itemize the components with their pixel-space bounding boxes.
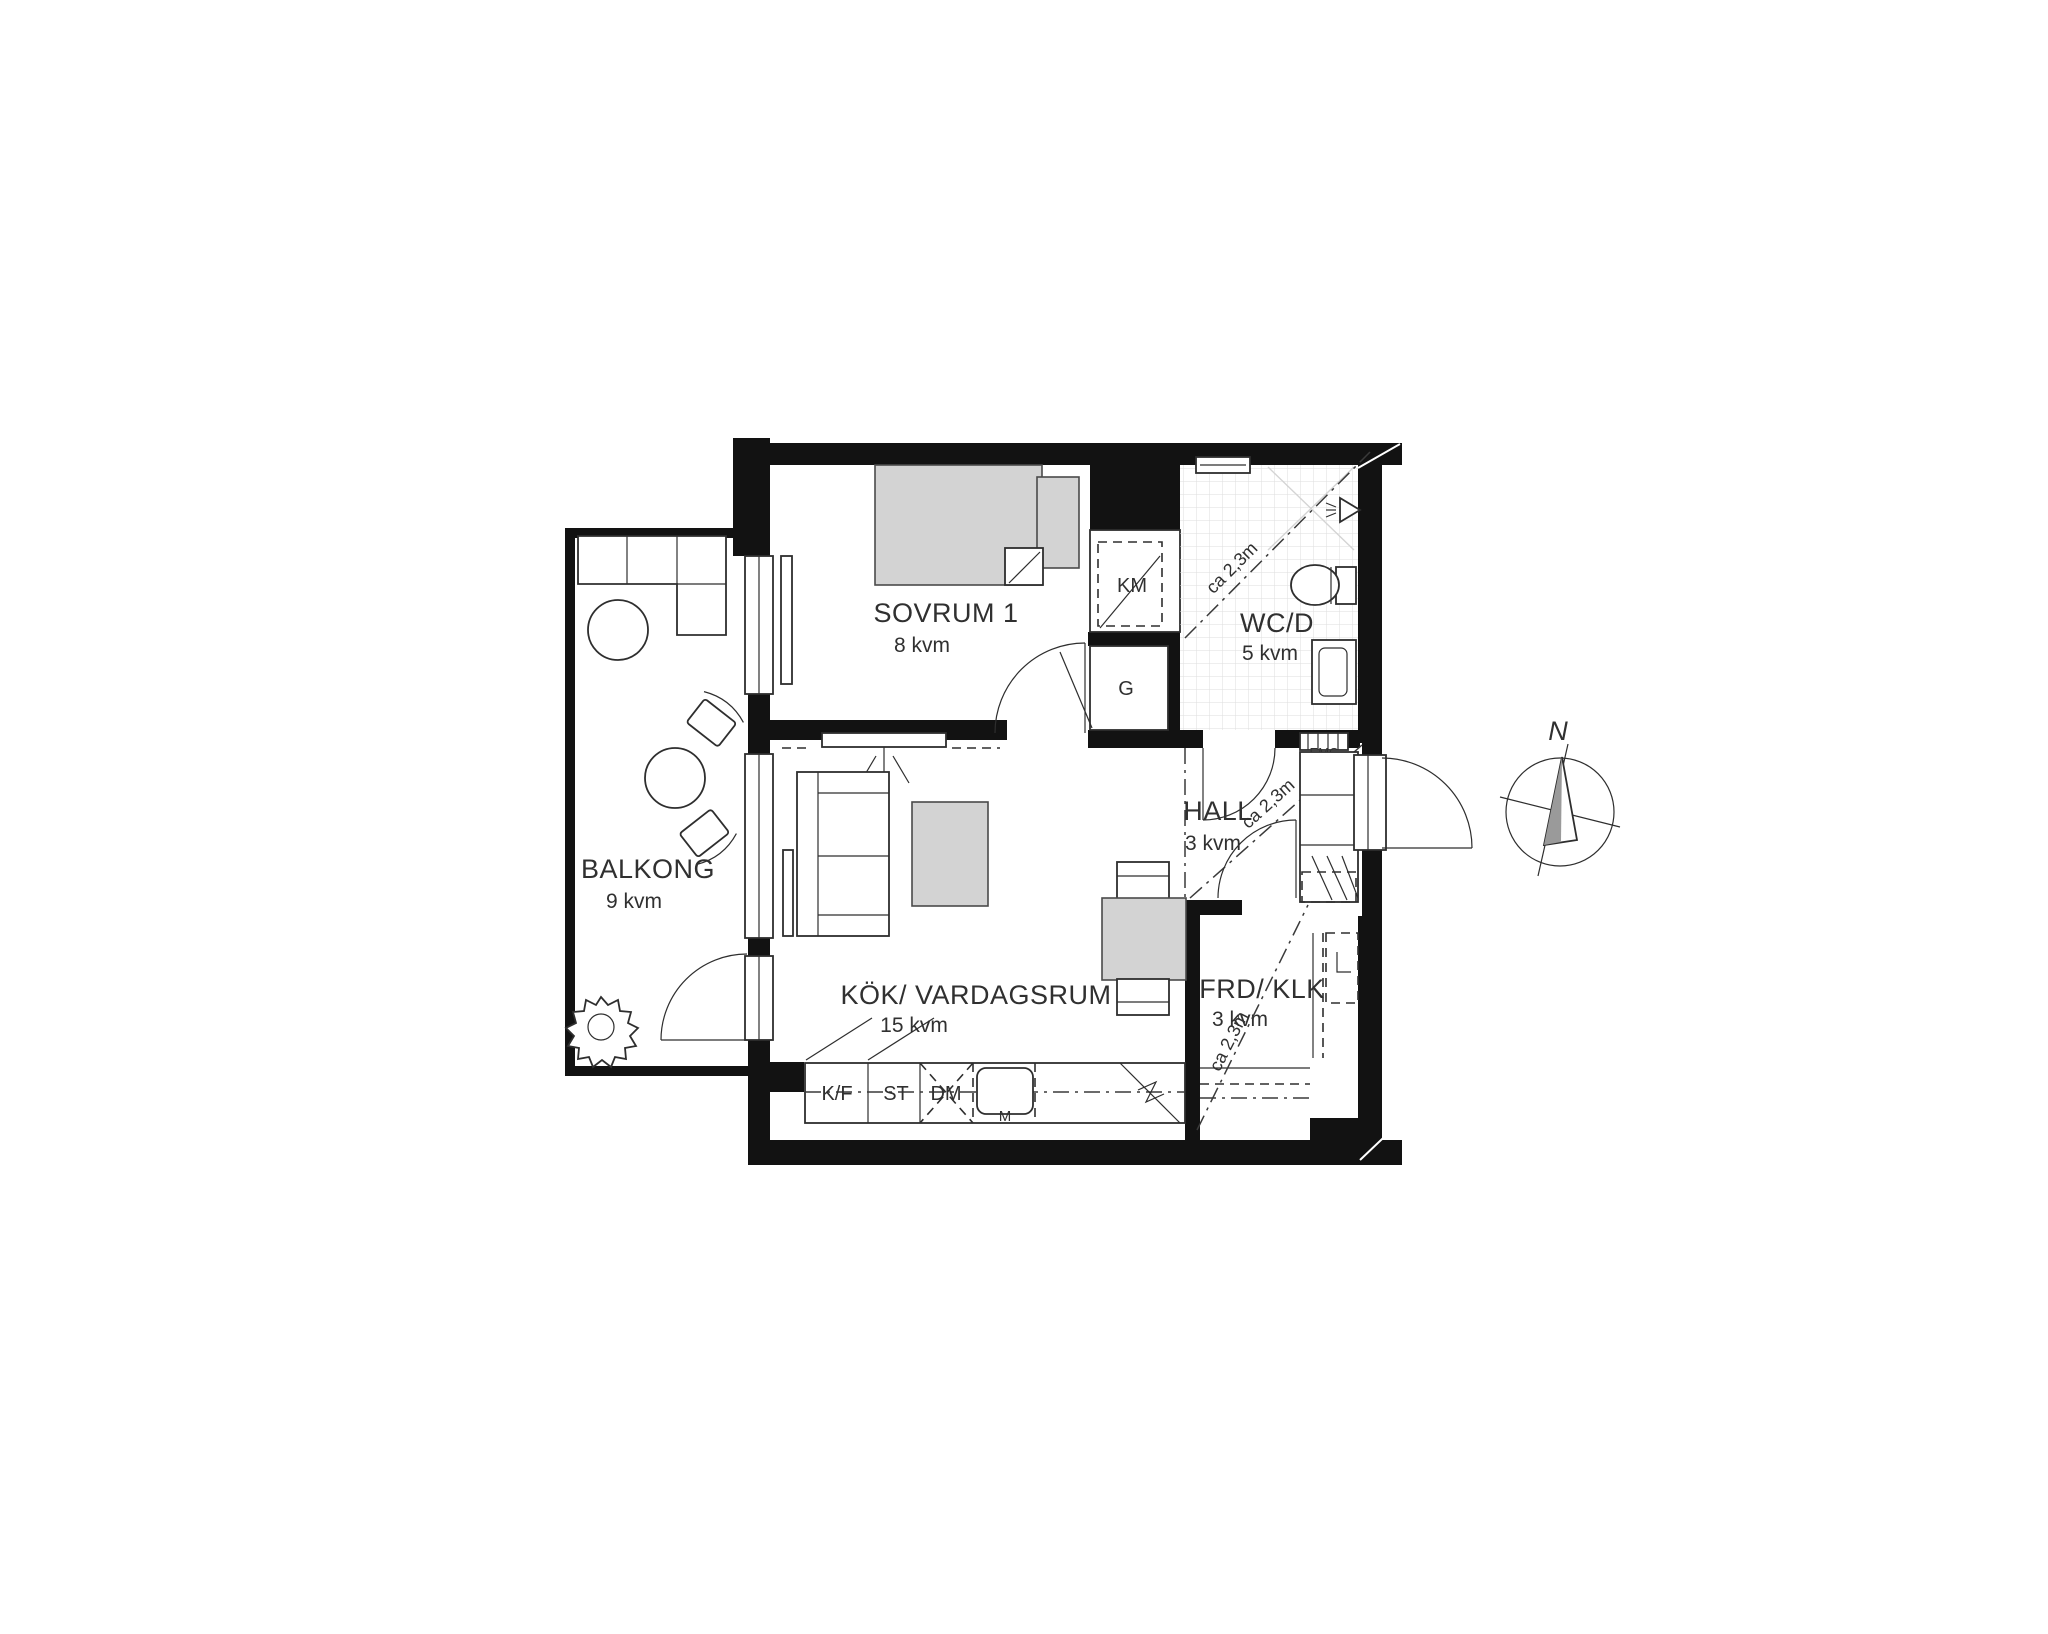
wall-frd-north-stub xyxy=(1200,900,1242,915)
entry-door-frame xyxy=(1354,755,1386,850)
toilet xyxy=(1291,565,1356,605)
balkong-label: BALKONG xyxy=(581,854,715,884)
dining-chair xyxy=(1117,862,1169,899)
room-balkong: BALKONG 9 kvm xyxy=(565,528,748,1076)
balcony-wall-west xyxy=(565,528,575,1076)
cabinet-leader-line xyxy=(806,1018,872,1060)
hall-cabinet-body xyxy=(1300,752,1358,902)
g-label: G xyxy=(1118,678,1134,700)
sofa-body xyxy=(797,772,889,936)
north-label: N xyxy=(1548,716,1568,746)
tv-symbol xyxy=(893,756,909,783)
wall-se-block xyxy=(1310,1118,1382,1165)
hall-cabinet xyxy=(1300,752,1358,902)
chair-seat xyxy=(686,699,736,747)
wall-hall-north-west xyxy=(1088,730,1203,748)
wcd-area-label: 5 kvm xyxy=(1242,642,1298,665)
sofa xyxy=(797,772,889,936)
washbasin xyxy=(1312,640,1356,704)
dining-chair xyxy=(1117,979,1169,1015)
g-door-swing xyxy=(1060,652,1092,728)
balcony-table xyxy=(645,748,705,808)
floorplan-svg: BALKONG 9 kvm SOVRUM 1 8 kvm KM G xyxy=(0,0,2048,1634)
closet-shelf xyxy=(1326,933,1358,1003)
sink-label: M xyxy=(999,1108,1012,1125)
balcony-door-swing xyxy=(661,954,747,1040)
wall-east-upper xyxy=(1358,443,1382,743)
wcd-label: WC/D xyxy=(1240,608,1314,638)
plant xyxy=(566,997,638,1067)
stove-label: ST xyxy=(883,1083,909,1105)
wall-kitchen-corner xyxy=(770,1062,804,1092)
coffee-table xyxy=(912,802,988,906)
balkong-area-label: 9 kvm xyxy=(606,890,662,913)
room-kok-vardagsrum: KÖK/ VARDAGSRUM 15 kvm xyxy=(782,733,1186,1060)
balcony-door-arc xyxy=(661,954,747,1040)
wall-east-entry xyxy=(1362,848,1382,916)
wall-west-south xyxy=(748,1040,770,1142)
kitchen-counter: K/F ST DM M xyxy=(805,1063,1185,1125)
room-sovrum1: SOVRUM 1 8 kvm xyxy=(781,465,1085,733)
closet-shelf-bracket xyxy=(1337,952,1351,972)
entry-door xyxy=(1354,755,1472,850)
bed-fold xyxy=(1005,548,1043,585)
shaft-block xyxy=(1090,450,1180,530)
entry-door-arc xyxy=(1382,758,1472,848)
wall-west-mid xyxy=(748,694,770,756)
wall-west-pier xyxy=(748,938,770,956)
radiator xyxy=(783,850,793,936)
balcony-chair xyxy=(682,687,746,750)
kok-label: KÖK/ VARDAGSRUM xyxy=(840,980,1111,1010)
frd-label: FRD/ KLK xyxy=(1199,974,1325,1004)
compass: N xyxy=(1500,716,1620,876)
plant-leaves xyxy=(566,997,638,1067)
sovrum-door-arc xyxy=(995,643,1085,733)
dishwasher-label: DM xyxy=(930,1083,961,1105)
wall-south xyxy=(748,1140,1402,1165)
wall-frd-west xyxy=(1185,900,1200,1140)
chair-seat xyxy=(679,809,729,857)
sovrum-label: SOVRUM 1 xyxy=(873,598,1018,628)
radiator xyxy=(781,556,792,684)
dining-set xyxy=(1102,862,1186,1015)
balcony-side-table xyxy=(588,600,648,660)
fridge-freezer-label: K/F xyxy=(821,1083,852,1105)
wall-km-g-divider xyxy=(1088,632,1180,646)
dining-table xyxy=(1102,898,1186,980)
room-hall: HALL 3 kvm ca 2,3m EMC xyxy=(1183,733,1472,902)
km-label: KM xyxy=(1117,575,1147,597)
wall-north xyxy=(748,443,1402,465)
wall-east-lower xyxy=(1358,916,1382,1142)
tv-bench xyxy=(822,733,946,747)
toilet-bowl xyxy=(1291,565,1339,605)
kok-area-label: 15 kvm xyxy=(880,1014,948,1037)
sovrum-area-label: 8 kvm xyxy=(894,634,950,657)
west-windows xyxy=(745,556,773,1040)
